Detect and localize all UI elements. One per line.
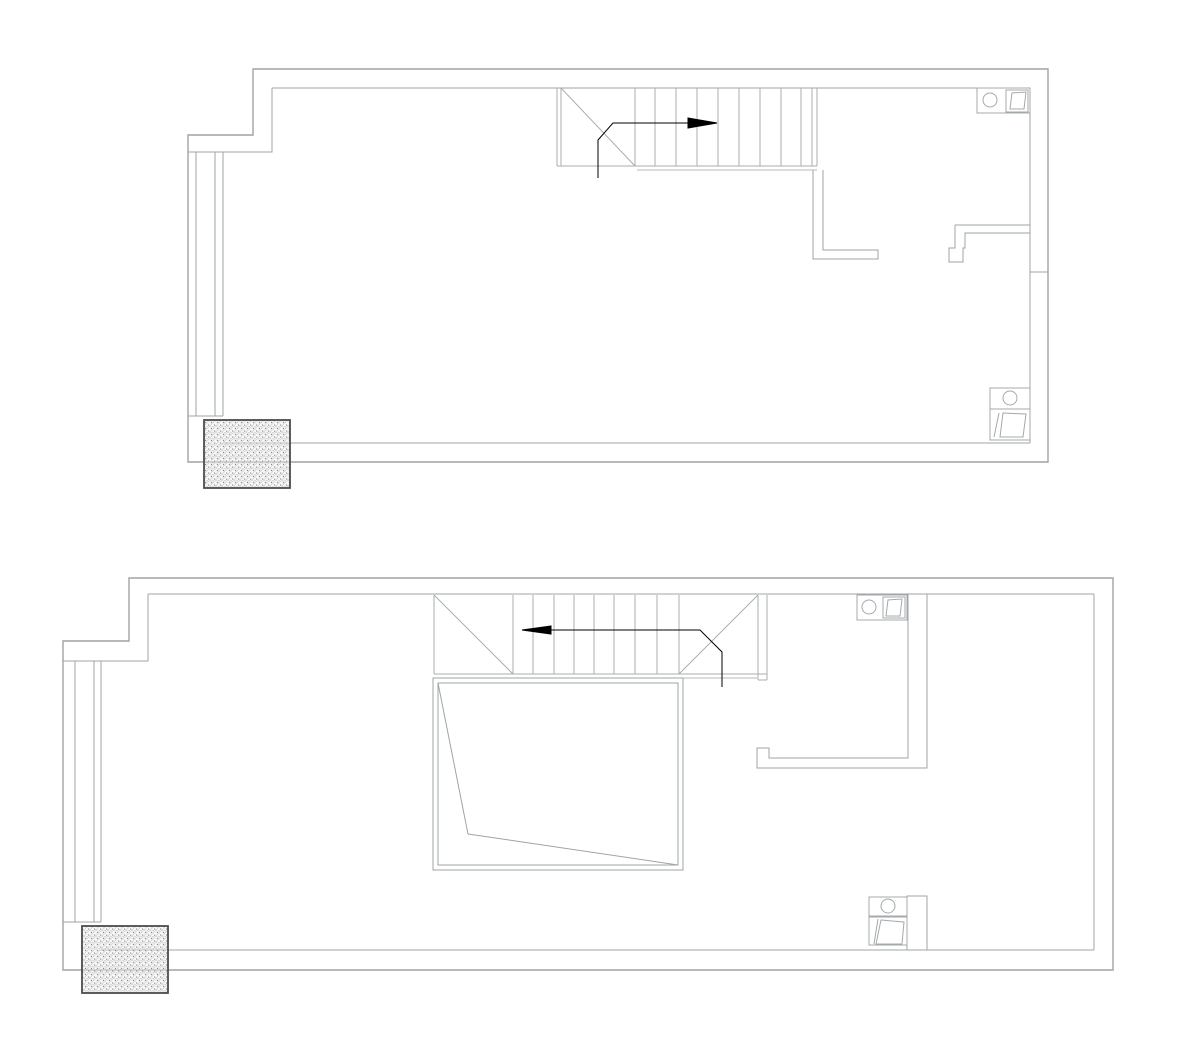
stair-winder-left — [434, 595, 513, 674]
basin-circle — [881, 899, 895, 913]
wc-symbol-strip — [994, 413, 999, 437]
floor-plan-drawing — [0, 0, 1200, 1044]
bathroom-wall-left — [813, 170, 878, 259]
stair-winder-right — [679, 595, 758, 674]
partition-stub — [907, 896, 927, 950]
outer-wall — [63, 578, 1113, 970]
inner-wall-step — [63, 594, 148, 661]
cad-canvas — [0, 0, 1200, 1044]
sink-circle — [862, 600, 876, 614]
upper-floor-plan — [188, 69, 1048, 488]
washer-symbol — [886, 599, 902, 616]
stair-direction-arrowhead — [522, 626, 551, 634]
column-hatch — [204, 420, 290, 488]
void-diagonal-2 — [468, 834, 678, 865]
wc-symbol — [1000, 413, 1026, 437]
void-opening-outer — [433, 678, 683, 870]
bathroom-door-jamb — [949, 225, 1030, 262]
lower-floor-plan — [63, 578, 1113, 993]
appliance-symbol-strip — [874, 919, 878, 944]
inner-wall-step — [188, 88, 272, 152]
void-diagonal-1 — [438, 683, 468, 834]
appliance-symbol — [876, 920, 904, 944]
sink-circle — [983, 93, 997, 107]
washer-symbol — [1010, 92, 1026, 109]
outer-wall — [188, 69, 1048, 462]
column-hatch — [82, 926, 168, 993]
stair-direction-arrowhead — [688, 118, 717, 128]
wc-circle — [1003, 391, 1017, 405]
void-opening-inner — [438, 683, 678, 865]
